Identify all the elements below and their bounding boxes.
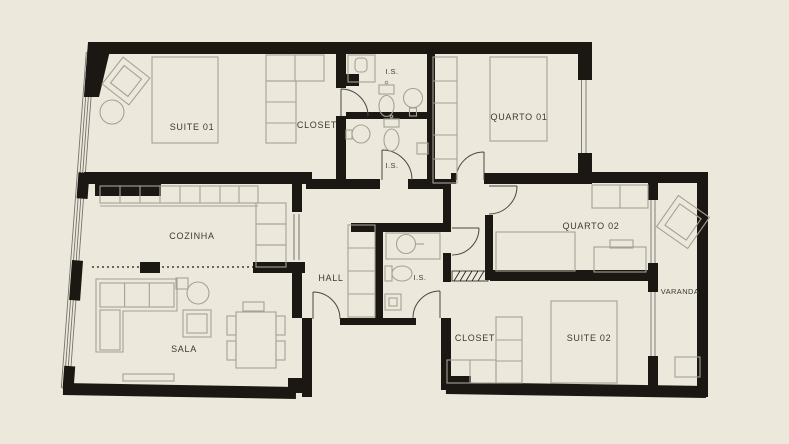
round-table — [187, 282, 209, 304]
toilet-hall-bath — [385, 266, 412, 281]
toilet-mid — [384, 115, 399, 151]
room-label-hall: HALL — [318, 273, 343, 283]
door-quarto01 — [456, 152, 484, 180]
room-label-closet02: CLOSET — [455, 333, 495, 343]
door-suite01-bath — [341, 89, 368, 116]
room-label-is-hall: I.S. — [414, 273, 427, 282]
bath-mid-fixtures — [346, 115, 428, 154]
door-corridor — [452, 228, 479, 255]
door-hall — [313, 292, 340, 319]
bed-quarto02 — [496, 232, 575, 271]
dining-set — [227, 302, 285, 368]
room-label-varanda: VARANDA — [661, 287, 700, 296]
armchair-suite01 — [102, 57, 150, 105]
room-label-closet01: CLOSET — [297, 120, 337, 130]
sink-mid — [346, 125, 370, 143]
varanda-bench — [675, 357, 700, 377]
door-hall-bath — [413, 291, 440, 318]
room-label-is-top: I.S. — [386, 67, 399, 76]
toilet-top — [379, 81, 394, 116]
sideboard — [123, 374, 174, 381]
corner-table — [176, 278, 188, 289]
bed-quarto01 — [490, 57, 547, 141]
floor-plan-page: SUITE 01 CLOSET I.S. I.S. QUARTO 01 COZI… — [0, 0, 789, 444]
hall-cabinet — [348, 225, 375, 317]
door-quarto02 — [489, 186, 517, 214]
sink-top — [404, 89, 423, 117]
shower-hall-bath — [385, 294, 401, 310]
room-label-is-mid: I.S. — [386, 161, 399, 170]
room-label-sala: SALA — [171, 344, 197, 354]
desk-quarto02 — [594, 240, 646, 272]
bath-top-fixtures — [348, 55, 423, 117]
wardrobe-quarto02 — [592, 185, 648, 208]
closet02-shelves — [447, 317, 522, 383]
armchair-sala — [183, 310, 211, 337]
cozinha-furniture — [100, 186, 286, 267]
room-label-quarto02: QUARTO 02 — [563, 221, 620, 231]
room-label-quarto01: QUARTO 01 — [491, 112, 548, 122]
sofa — [96, 279, 177, 352]
room-label-suite01: SUITE 01 — [170, 122, 215, 132]
vanity-hall-bath — [386, 233, 440, 259]
kitchen-cabinets — [256, 203, 286, 267]
side-table-suite01 — [100, 100, 124, 124]
floor-plan: SUITE 01 CLOSET I.S. I.S. QUARTO 01 COZI… — [0, 0, 789, 444]
room-label-cozinha: COZINHA — [169, 231, 214, 241]
shelf-mid — [417, 143, 428, 154]
threshold-hatch — [452, 271, 488, 281]
bath-hall-fixtures — [385, 233, 440, 310]
sala-furniture — [96, 278, 285, 381]
room-label-suite02: SUITE 02 — [567, 333, 612, 343]
closet-quarto01 — [433, 57, 457, 183]
